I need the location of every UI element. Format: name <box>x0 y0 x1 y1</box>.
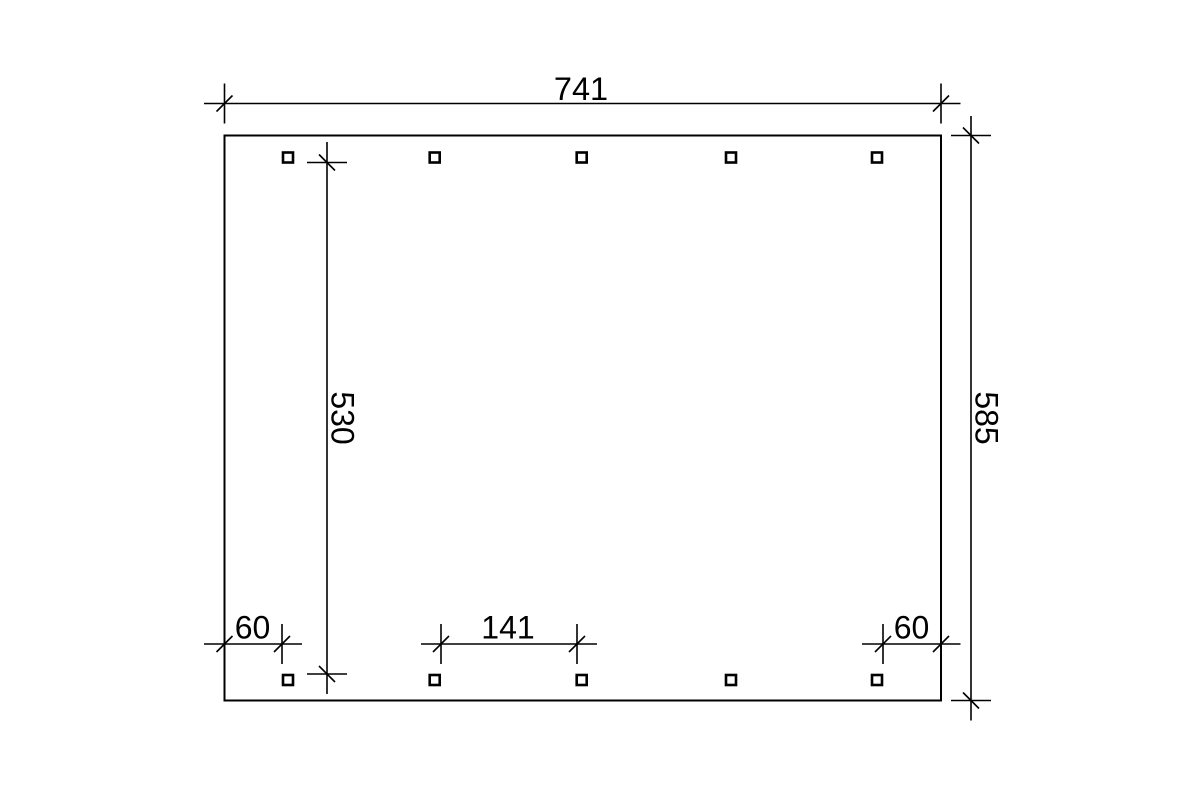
svg-text:141: 141 <box>481 610 534 646</box>
svg-text:60: 60 <box>894 610 930 646</box>
svg-text:741: 741 <box>554 71 608 107</box>
svg-text:530: 530 <box>325 391 361 444</box>
svg-text:60: 60 <box>235 610 271 646</box>
svg-text:585: 585 <box>969 391 1005 444</box>
